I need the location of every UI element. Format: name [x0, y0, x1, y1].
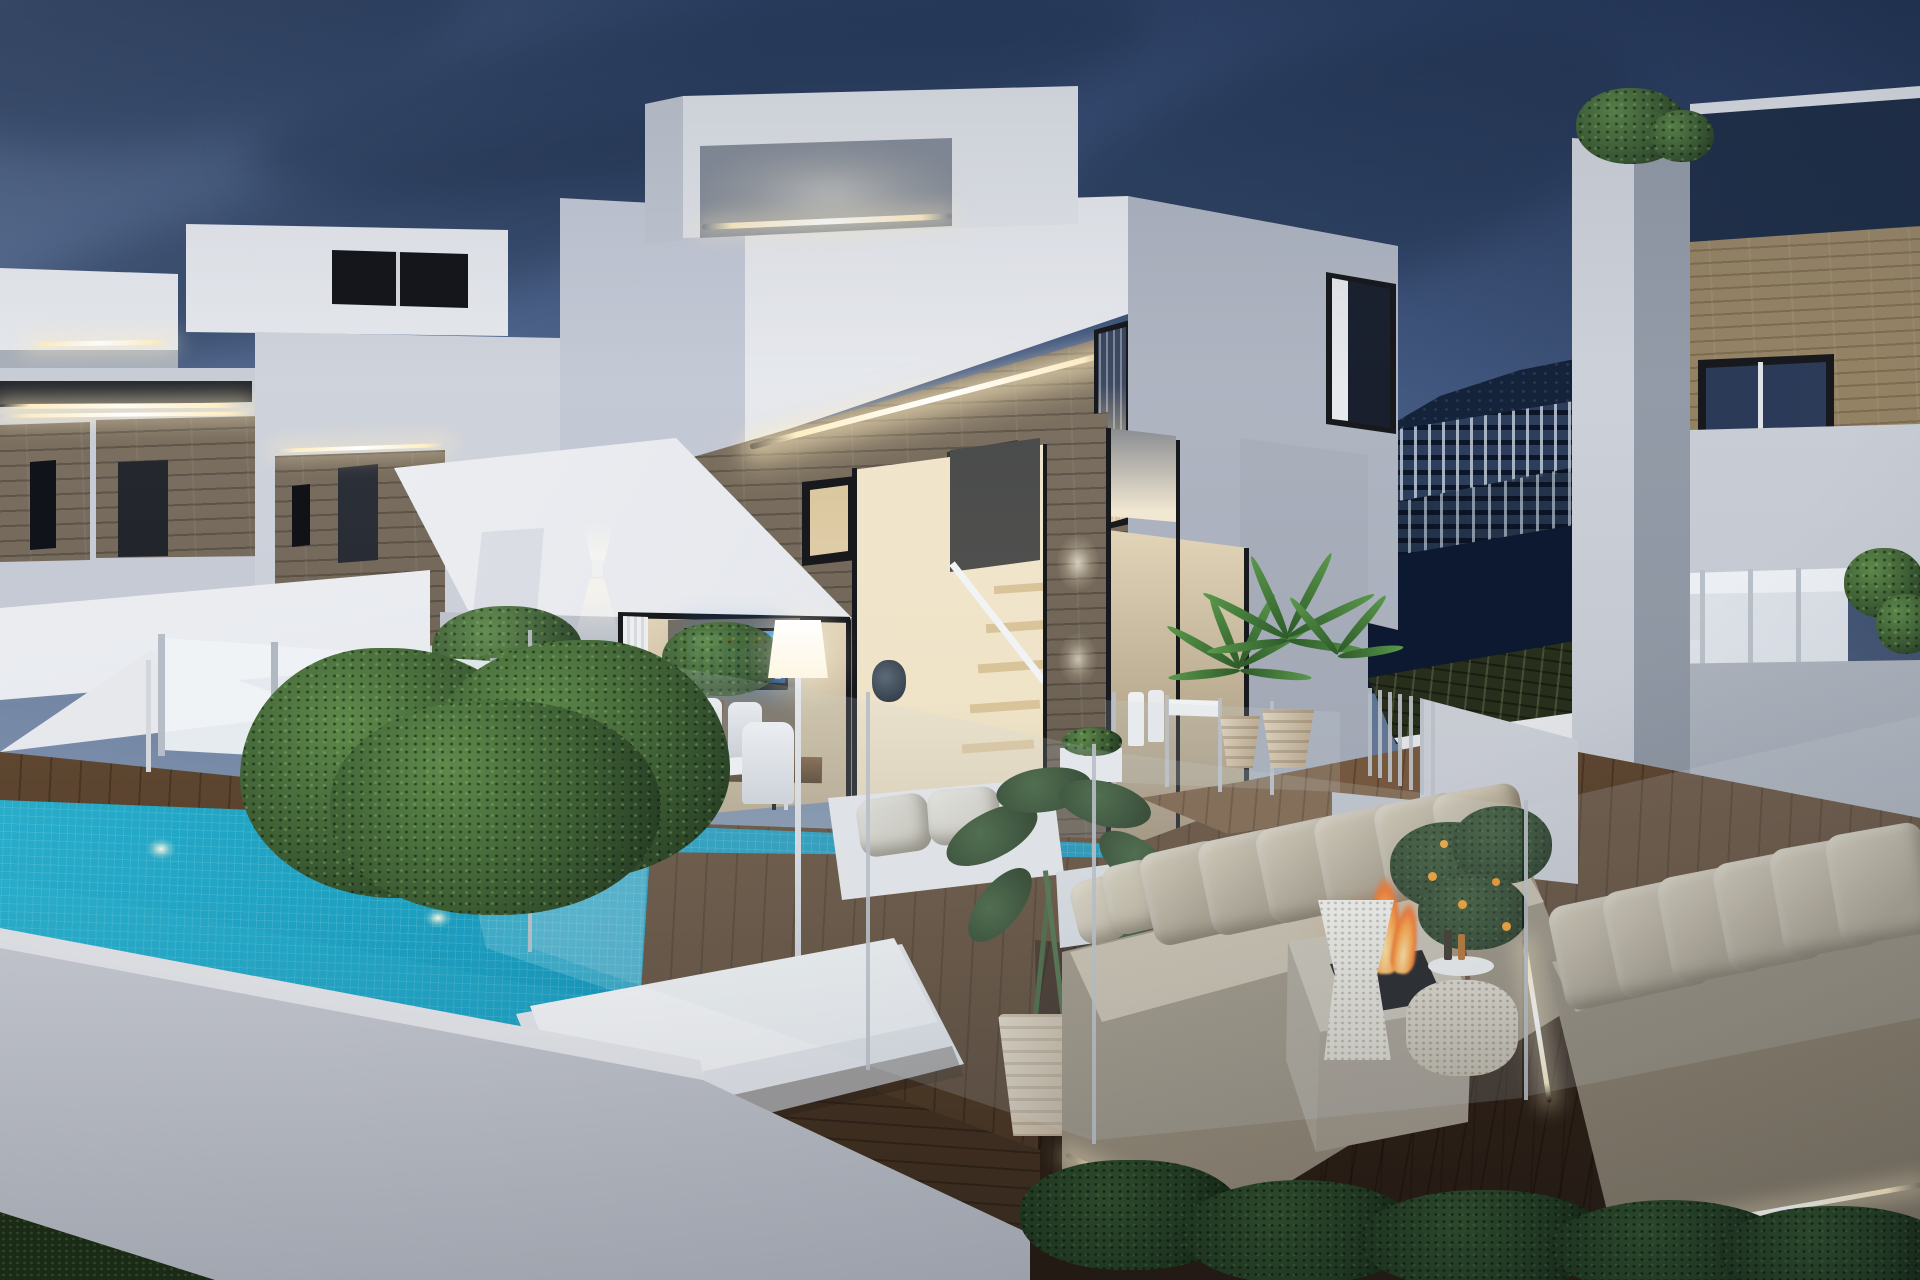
glass-balustrade-post	[1524, 800, 1528, 1100]
glass-balustrade-post	[866, 692, 870, 1070]
main-villa-roof-led-halo	[690, 140, 970, 250]
left-villa-window-mullion	[396, 252, 400, 306]
stair-balustrade	[1431, 702, 1435, 800]
stair-balustrade	[1409, 696, 1413, 790]
window-band-mullion	[1700, 570, 1705, 666]
stair-balustrade	[1378, 690, 1382, 778]
boxwood-hedge	[330, 700, 660, 915]
window-band-mullion	[1748, 569, 1753, 664]
column-downlight	[1058, 632, 1098, 686]
underwater-light	[146, 838, 176, 860]
glass-balustrade-post	[1092, 744, 1096, 1144]
fence-post	[158, 634, 165, 756]
scene	[0, 0, 1920, 1280]
window-band-mullion	[1796, 568, 1801, 663]
wall-sconce-icon	[592, 560, 603, 577]
interior-wall-art	[872, 660, 906, 702]
umbrella-pole	[146, 660, 151, 772]
stair-balustrade	[1420, 699, 1424, 795]
stair-balustrade	[1388, 692, 1392, 782]
stair-balustrade	[1368, 688, 1372, 776]
floor-lamp-shade	[768, 620, 828, 678]
pillar-top-bush	[1650, 110, 1714, 162]
column-downlight	[1056, 534, 1100, 592]
stair-balustrade	[1398, 694, 1402, 786]
